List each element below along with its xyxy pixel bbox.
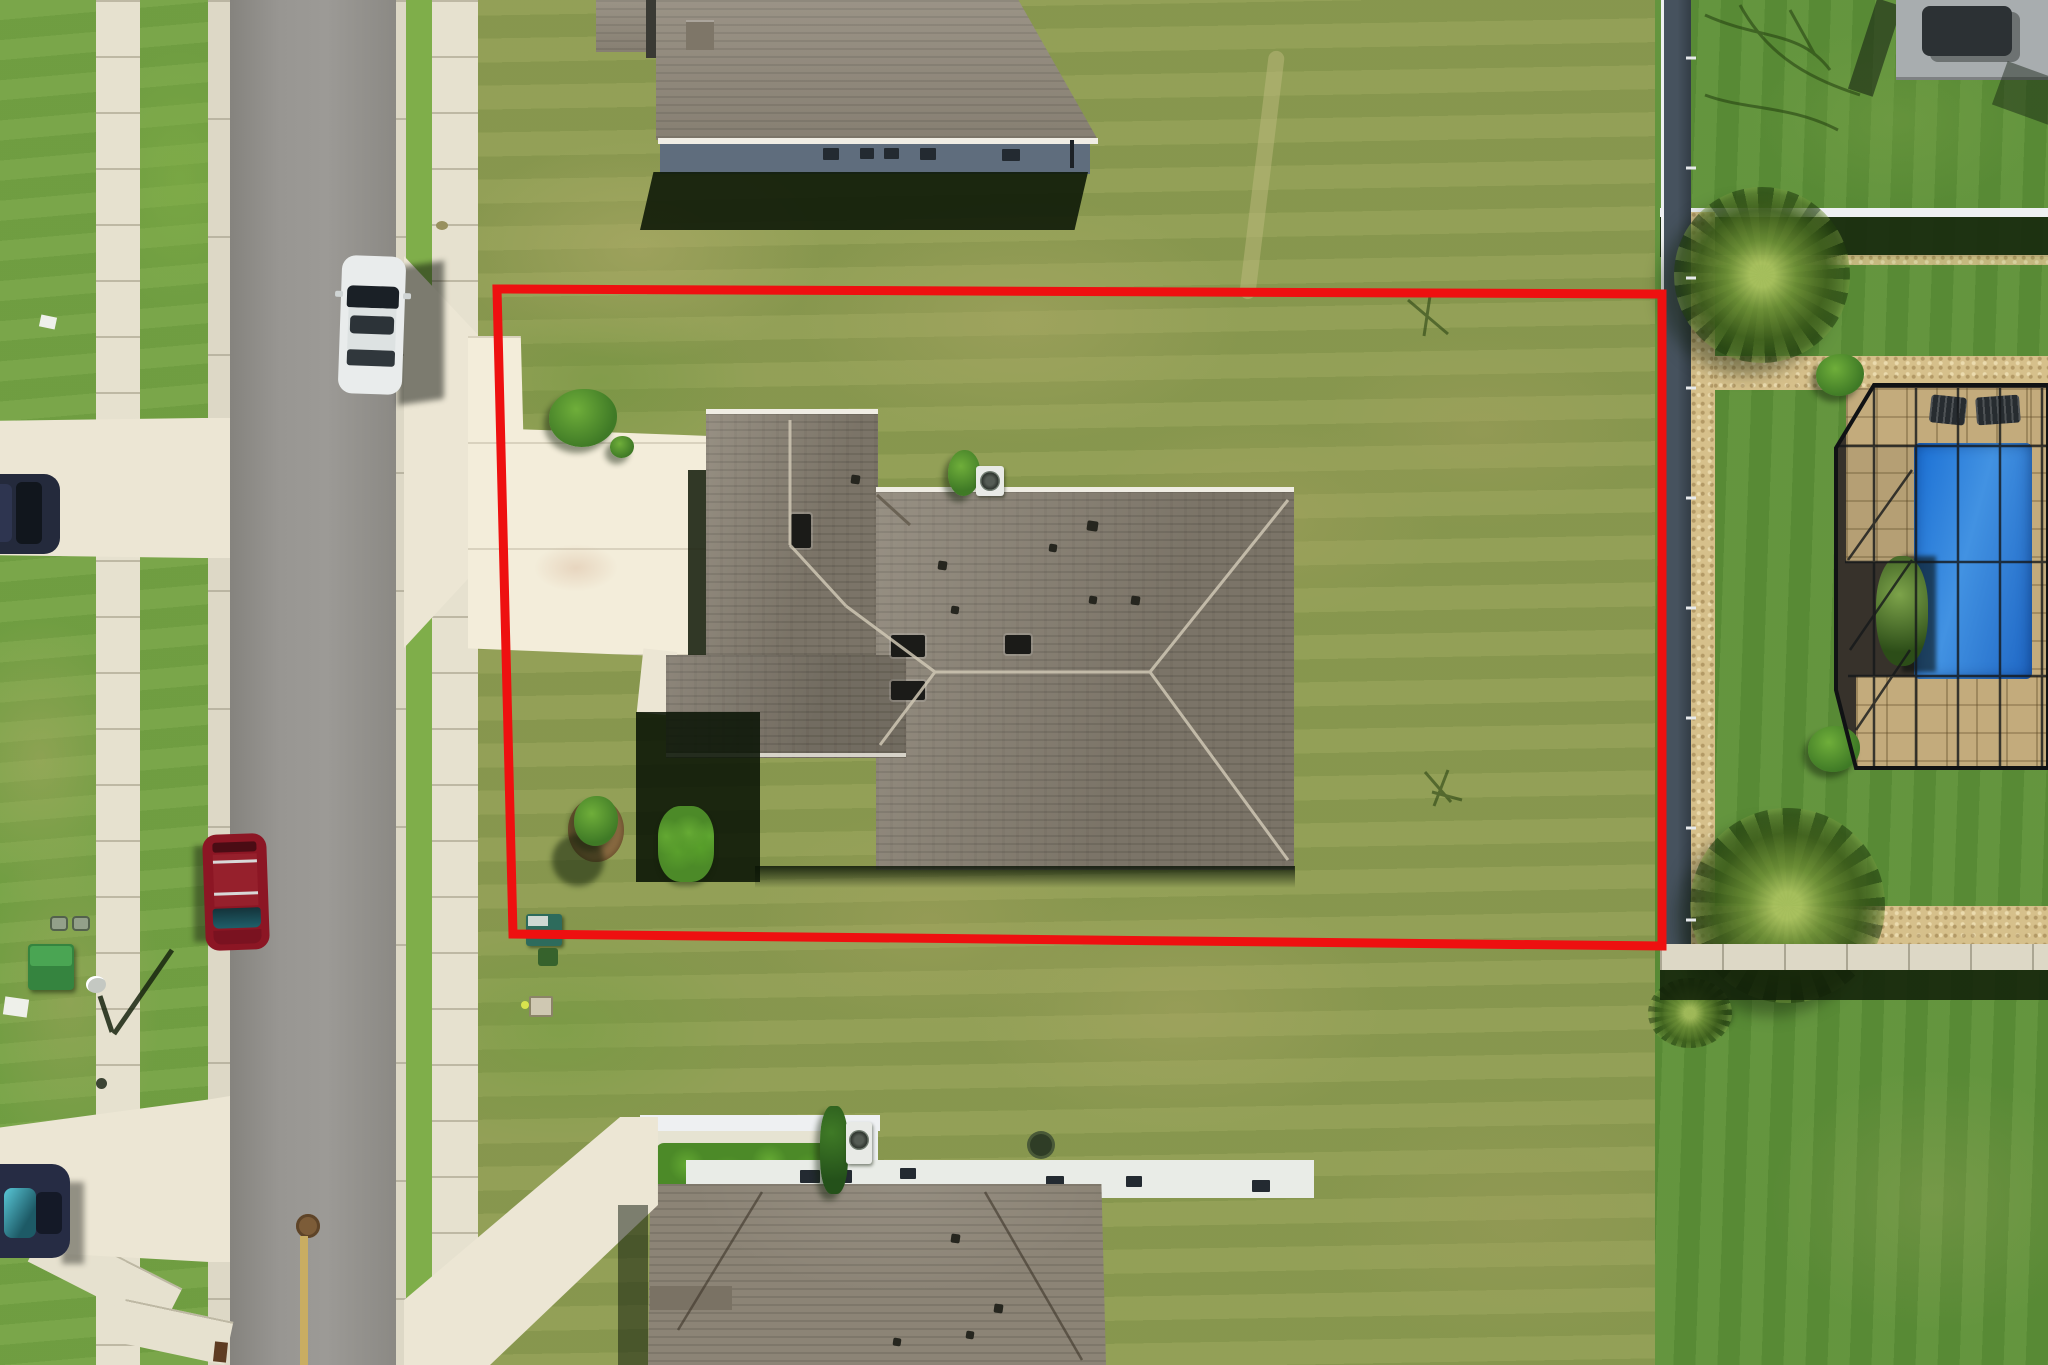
property-boundary [497,289,1662,946]
fence-posts [1686,58,1696,920]
branch-shadows [1408,5,1860,806]
roof-valley-line [877,495,910,525]
annotation-overlay [0,0,2048,1365]
screen-grid [1836,385,2048,768]
roof-ridge-lines [790,420,1288,860]
aerial-photo [0,0,2048,1365]
streetlight-shadow [100,950,172,1034]
bottom-roof-hips [678,1192,1082,1360]
